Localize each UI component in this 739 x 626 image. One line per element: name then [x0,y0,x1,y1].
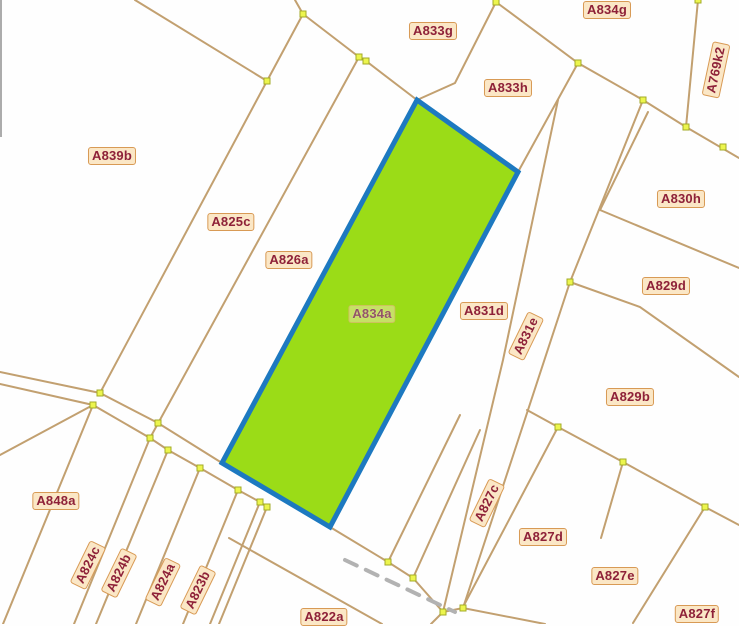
parcel-boundary-line [570,282,739,377]
vertex-marker [235,487,241,493]
vertex-marker [147,435,153,441]
parcel-label-A829b[interactable]: A829b [606,388,654,406]
vertex-marker [165,447,171,453]
parcel-label-A827f[interactable]: A827f [675,605,719,623]
parcel-boundary-line [686,0,698,127]
parcel-boundary-line [600,112,648,210]
parcel-label-A834a[interactable]: A834a [348,305,395,323]
parcel-boundary-line [601,462,623,538]
vertex-marker [720,144,726,150]
vertex-marker [410,575,416,581]
road-dash-marking [345,560,455,612]
vertex-marker [695,0,701,3]
parcel-boundary-line [267,14,303,81]
parcel-label-A822a[interactable]: A822a [300,608,347,626]
vertex-marker [264,504,270,510]
map-canvas: A833gA834gA833hA769k2A839bA825cA826aA830… [0,0,739,624]
vertex-marker [300,11,306,17]
vertex-marker [440,609,446,615]
vertex-marker [702,504,708,510]
vertex-marker [356,54,362,60]
parcel-boundary-line [219,507,267,624]
vertex-marker [257,499,263,505]
parcel-label-A827d[interactable]: A827d [519,528,567,546]
parcel-label-A831d[interactable]: A831d [460,302,508,320]
parcel-boundary-line [100,81,267,393]
vertex-marker [460,605,466,611]
parcel-boundary-line [210,502,260,624]
vertex-marker [555,424,561,430]
vertex-marker [197,465,203,471]
vertex-marker [363,58,369,64]
parcel-boundary-line [443,608,545,624]
parcel-label-A830h[interactable]: A830h [657,190,705,208]
vertex-marker [264,78,270,84]
parcel-boundary-line [558,427,739,525]
parcel-label-A829d[interactable]: A829d [642,277,690,295]
vertex-marker [640,97,646,103]
parcel-boundary-line [0,405,93,455]
vertex-marker [493,0,499,5]
parcel-boundary-line [413,430,480,578]
parcel-label-A825c[interactable]: A825c [207,213,254,231]
parcel-boundary-line [527,410,558,427]
vertex-marker [90,402,96,408]
vertex-marker [155,420,161,426]
parcel-boundary-line [600,210,739,268]
parcel-boundary-line [0,384,267,507]
parcel-boundary-line [303,14,359,57]
vertex-marker [385,559,391,565]
vertex-marker [97,390,103,396]
parcel-label-A839b[interactable]: A839b [88,147,136,165]
parcel-label-A833g[interactable]: A833g [409,22,457,40]
parcel-boundary-line [3,405,93,624]
parcel-boundary-line [0,372,222,463]
parcel-boundary-line [135,0,267,81]
parcel-boundary-line [330,527,443,612]
parcel-label-A848a[interactable]: A848a [32,492,79,510]
parcel-label-A834g[interactable]: A834g [583,1,631,19]
parcel-boundary-line [388,415,460,562]
vertex-marker [567,279,573,285]
vertex-marker [683,124,689,130]
vertex-marker [620,459,626,465]
parcel-label-A833h[interactable]: A833h [484,79,532,97]
parcel-label-A827e[interactable]: A827e [591,567,638,585]
parcel-boundary-line [496,2,739,158]
vertex-marker [575,60,581,66]
parcel-label-A826a[interactable]: A826a [265,251,312,269]
